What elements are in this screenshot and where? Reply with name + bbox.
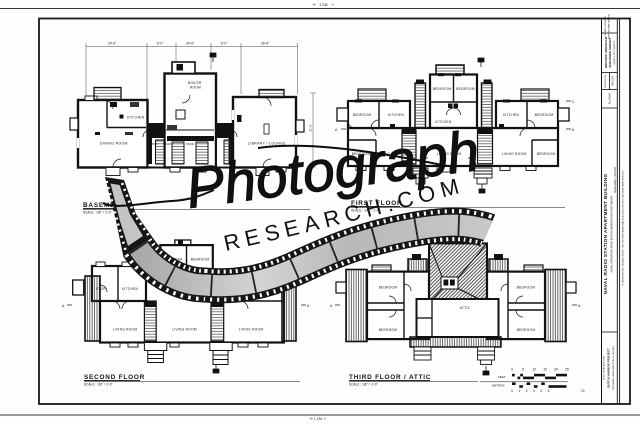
svg-text:IF REPRODUCED, PLEASE CREDIT T: IF REPRODUCED, PLEASE CREDIT THE HISTORI… bbox=[622, 170, 625, 285]
svg-text:0: 0 bbox=[511, 389, 513, 393]
svg-text:10: 10 bbox=[581, 389, 585, 393]
svg-text:KITCHEN: KITCHEN bbox=[122, 287, 138, 291]
svg-text:ALASKA: ALASKA bbox=[608, 93, 612, 105]
svg-text:6'-0": 6'-0" bbox=[221, 42, 227, 46]
svg-text:3: 3 bbox=[533, 389, 535, 393]
svg-text:24'-6": 24'-6" bbox=[108, 42, 116, 46]
svg-text:24'-6": 24'-6" bbox=[186, 42, 194, 46]
svg-text:LIVING ROOM: LIVING ROOM bbox=[239, 328, 264, 332]
svg-text:BEDROOM: BEDROOM bbox=[535, 113, 554, 117]
svg-text:DUTCH HARBOR PROJECT: DUTCH HARBOR PROJECT bbox=[607, 348, 611, 388]
svg-text:THIRD FLOOR / ATTIC: THIRD FLOOR / ATTIC bbox=[349, 374, 431, 381]
svg-text:LIVING ROOM: LIVING ROOM bbox=[172, 328, 197, 332]
svg-text:U.S. DEPT. INTERIOR: U.S. DEPT. INTERIOR bbox=[605, 16, 607, 37]
svg-text:ROOM: ROOM bbox=[190, 86, 201, 90]
svg-text:BOILER: BOILER bbox=[188, 81, 202, 85]
svg-text:KITCHEN: KITCHEN bbox=[388, 113, 404, 117]
svg-text:SCALE : 1/8" = 1'-0": SCALE : 1/8" = 1'-0" bbox=[83, 211, 112, 215]
svg-text:BEDROOM: BEDROOM bbox=[353, 113, 372, 117]
svg-text:5: 5 bbox=[548, 389, 550, 393]
svg-text:DINING ROOM: DINING ROOM bbox=[100, 142, 128, 146]
svg-text:SHEET 1 OF 2 SHEETS: SHEET 1 OF 2 SHEETS bbox=[614, 40, 616, 64]
svg-text:1: 1 bbox=[518, 389, 520, 393]
svg-text:SURVEY NO.: SURVEY NO. bbox=[605, 74, 607, 88]
svg-text:BEDROOM: BEDROOM bbox=[517, 286, 536, 290]
svg-text:LIVING ROOM: LIVING ROOM bbox=[113, 328, 138, 332]
svg-text:STOR: STOR bbox=[150, 142, 157, 146]
svg-text:BEDROOM: BEDROOM bbox=[433, 87, 452, 91]
svg-text:AK-214: AK-214 bbox=[611, 76, 615, 86]
svg-text:NATIONAL PARK SERVICE: NATIONAL PARK SERVICE bbox=[608, 13, 611, 39]
svg-text:STAIR: STAIR bbox=[186, 142, 194, 146]
svg-text:10: 10 bbox=[532, 368, 536, 372]
svg-text:26'-6": 26'-6" bbox=[261, 42, 269, 46]
svg-text:METERS: METERS bbox=[492, 384, 505, 388]
svg-text:4: 4 bbox=[540, 389, 542, 393]
svg-text:NAVAL OPERATING BASE DUTCH HAR: NAVAL OPERATING BASE DUTCH HARBOR AND FO… bbox=[610, 195, 614, 272]
svg-text:STAIR: STAIR bbox=[163, 142, 171, 146]
svg-text:BEDROOM: BEDROOM bbox=[517, 328, 536, 332]
svg-text:15: 15 bbox=[543, 368, 547, 372]
svg-text:BUILDINGS SURVEY: BUILDINGS SURVEY bbox=[608, 38, 612, 68]
svg-text:BEDROOM: BEDROOM bbox=[379, 328, 398, 332]
svg-text:⊢ 1 CM ⊣: ⊢ 1 CM ⊣ bbox=[310, 417, 326, 421]
svg-text:BEDROOM: BEDROOM bbox=[537, 152, 556, 156]
svg-text:STOR: STOR bbox=[96, 287, 106, 291]
svg-text:FEET: FEET bbox=[498, 375, 506, 379]
svg-text:31'-0": 31'-0" bbox=[309, 124, 313, 132]
svg-text:LIVING ROOM: LIVING ROOM bbox=[502, 152, 527, 156]
svg-text:KITCHEN: KITCHEN bbox=[503, 113, 519, 117]
svg-text:6'-0": 6'-0" bbox=[157, 42, 163, 46]
svg-text:CLIFF SOODSMA, 1986: CLIFF SOODSMA, 1986 bbox=[603, 355, 606, 380]
svg-text:20: 20 bbox=[554, 368, 558, 372]
svg-text:ATTIC: ATTIC bbox=[460, 306, 471, 310]
svg-text:SCALE : 1/8" = 1'-0": SCALE : 1/8" = 1'-0" bbox=[84, 383, 113, 387]
svg-text:KITCHEN: KITCHEN bbox=[127, 116, 145, 120]
svg-text:5: 5 bbox=[522, 368, 524, 372]
svg-text:2: 2 bbox=[526, 389, 528, 393]
svg-text:BEDROOM: BEDROOM bbox=[456, 87, 475, 91]
svg-text:UNALASKA – ISLAND: UNALASKA – ISLAND bbox=[613, 167, 617, 193]
svg-text:RECORDED UNDER DIRECTION OF TH: RECORDED UNDER DIRECTION OF THE NPS bbox=[613, 346, 615, 390]
svg-text:25: 25 bbox=[565, 368, 569, 372]
svg-text:SCALE : 1/8" = 1'-0": SCALE : 1/8" = 1'-0" bbox=[349, 383, 378, 387]
svg-text:0: 0 bbox=[511, 368, 513, 372]
svg-text:⊢ 1 CM ⊣: ⊢ 1 CM ⊣ bbox=[313, 3, 334, 7]
svg-text:BEDROOM: BEDROOM bbox=[379, 286, 398, 290]
svg-text:SECOND FLOOR: SECOND FLOOR bbox=[84, 374, 145, 381]
svg-text:BEDROOM: BEDROOM bbox=[191, 258, 210, 262]
svg-text:NAVAL RADIO STATION APARTMENT: NAVAL RADIO STATION APARTMENT BUILDING bbox=[603, 173, 609, 294]
